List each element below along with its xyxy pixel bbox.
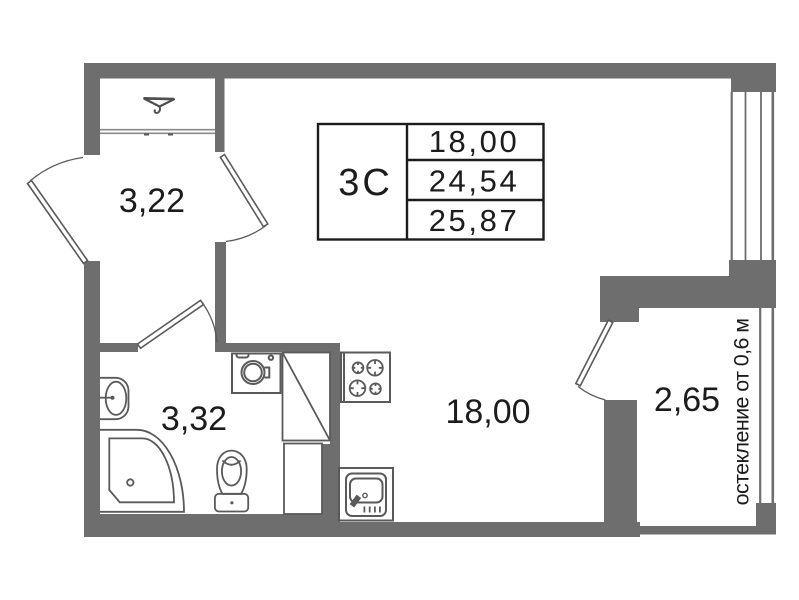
svg-text:25,87: 25,87 [429, 203, 520, 238]
svg-text:3,32: 3,32 [161, 400, 227, 438]
svg-text:3С: 3С [338, 162, 393, 204]
svg-text:18,00: 18,00 [445, 393, 530, 431]
svg-text:18,00: 18,00 [429, 124, 520, 159]
svg-text:3,22: 3,22 [119, 182, 185, 220]
svg-text:2,65: 2,65 [654, 381, 720, 419]
svg-text:24,54: 24,54 [429, 164, 520, 199]
svg-text:остекление от 0,6 м: остекление от 0,6 м [730, 319, 754, 506]
